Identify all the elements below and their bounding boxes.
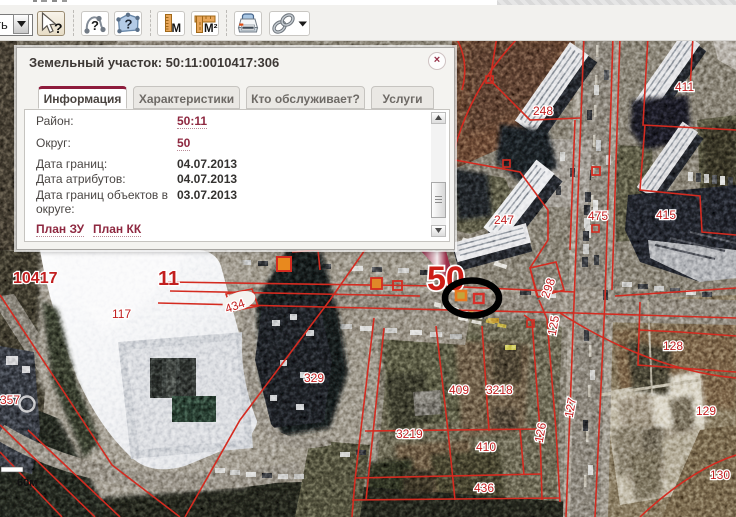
svg-text:60м: 60м — [17, 477, 37, 489]
svg-text:475: 475 — [588, 209, 608, 223]
svg-text:11: 11 — [158, 268, 179, 290]
svg-text:410: 410 — [476, 440, 496, 454]
svg-text:357: 357 — [0, 393, 20, 407]
svg-text:128: 128 — [663, 339, 683, 353]
svg-text:10417: 10417 — [13, 270, 58, 287]
svg-text:415: 415 — [656, 208, 676, 222]
svg-text:411: 411 — [675, 80, 694, 94]
svg-text:?: ? — [54, 20, 63, 35]
svg-text:130: 130 — [710, 468, 730, 482]
svg-text:?: ? — [91, 18, 99, 33]
svg-text:117: 117 — [112, 307, 131, 321]
svg-text:248: 248 — [533, 104, 553, 118]
svg-text:М²: М² — [204, 23, 218, 35]
svg-text:409: 409 — [449, 383, 469, 397]
svg-text:329: 329 — [304, 371, 324, 385]
svg-text:247: 247 — [494, 213, 514, 227]
svg-text:?: ? — [125, 17, 133, 32]
svg-text:129: 129 — [696, 404, 716, 418]
svg-text:436: 436 — [474, 481, 494, 495]
svg-text:М: М — [172, 23, 182, 35]
svg-text:3218: 3218 — [486, 383, 513, 397]
svg-text:3219: 3219 — [396, 427, 423, 441]
